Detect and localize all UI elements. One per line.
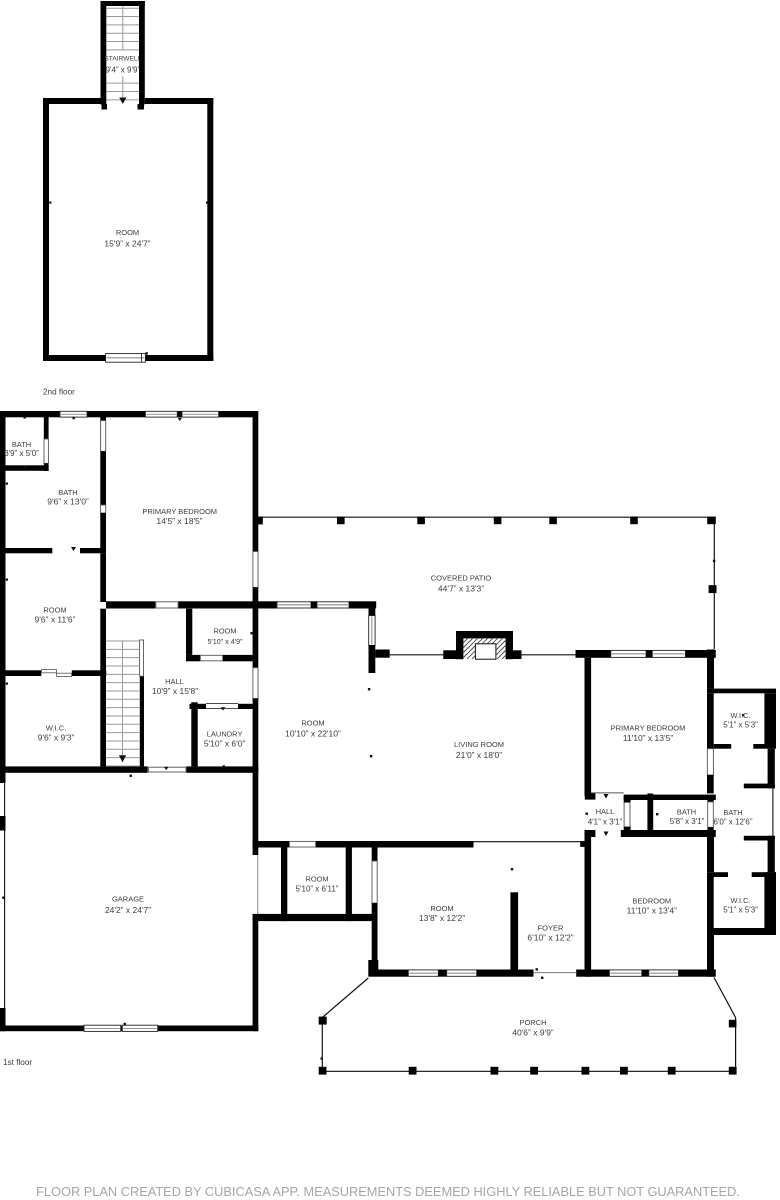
svg-text:HALL: HALL bbox=[596, 807, 615, 816]
svg-text:FOYER: FOYER bbox=[538, 924, 564, 933]
svg-text:1st floor: 1st floor bbox=[3, 1058, 32, 1067]
svg-text:PRIMARY BEDROOM: PRIMARY BEDROOM bbox=[142, 507, 217, 516]
svg-text:5'10” x 4'9”: 5'10” x 4'9” bbox=[207, 637, 243, 646]
svg-text:LAUNDRY: LAUNDRY bbox=[207, 730, 243, 739]
svg-text:9'4” x 9'9”: 9'4” x 9'9” bbox=[105, 65, 140, 74]
svg-text:ROOM: ROOM bbox=[116, 228, 139, 237]
svg-text:24'2” x 24'7”: 24'2” x 24'7” bbox=[105, 905, 151, 915]
svg-text:BEDROOM: BEDROOM bbox=[632, 896, 671, 905]
svg-text:40'6” x 9'9”: 40'6” x 9'9” bbox=[512, 1028, 554, 1038]
svg-text:ROOM: ROOM bbox=[214, 627, 237, 636]
svg-text:4'1” x 3'1”: 4'1” x 3'1” bbox=[588, 817, 623, 826]
svg-text:BATH: BATH bbox=[677, 807, 696, 816]
svg-text:5'10” x 6'11”: 5'10” x 6'11” bbox=[296, 885, 339, 894]
svg-text:ROOM: ROOM bbox=[430, 904, 453, 913]
svg-text:W.I.C.: W.I.C. bbox=[46, 723, 66, 732]
svg-text:ROOM: ROOM bbox=[306, 875, 329, 884]
svg-text:9'6” x 13'0”: 9'6” x 13'0” bbox=[47, 497, 89, 507]
svg-text:W.I.C.: W.I.C. bbox=[730, 711, 750, 720]
svg-text:FLOOR PLAN CREATED BY CUBICASA: FLOOR PLAN CREATED BY CUBICASA APP. MEAS… bbox=[36, 1184, 740, 1199]
svg-text:BATH: BATH bbox=[723, 808, 742, 817]
svg-text:PORCH: PORCH bbox=[519, 1018, 546, 1027]
svg-text:ROOM: ROOM bbox=[43, 605, 66, 614]
svg-text:GARAGE: GARAGE bbox=[112, 895, 144, 904]
svg-text:13'8” x 12'2”: 13'8” x 12'2” bbox=[419, 913, 465, 923]
svg-text:5'10” x 6'0”: 5'10” x 6'0” bbox=[204, 739, 246, 749]
svg-text:11'10” x 13'4”: 11'10” x 13'4” bbox=[627, 905, 678, 915]
svg-text:15'9” x 24'7”: 15'9” x 24'7” bbox=[104, 239, 150, 249]
svg-text:PRIMARY BEDROOM: PRIMARY BEDROOM bbox=[611, 724, 686, 733]
svg-text:2nd floor: 2nd floor bbox=[43, 388, 75, 397]
svg-text:COVERED PATIO: COVERED PATIO bbox=[431, 574, 492, 583]
svg-text:21'0” x 18'0”: 21'0” x 18'0” bbox=[456, 750, 502, 760]
svg-text:3'9” x 5'0”: 3'9” x 5'0” bbox=[4, 449, 39, 458]
svg-text:HALL: HALL bbox=[165, 677, 184, 686]
svg-text:14'5” x 18'5”: 14'5” x 18'5” bbox=[156, 516, 202, 526]
svg-text:11'10” x 13'5”: 11'10” x 13'5” bbox=[623, 733, 674, 743]
svg-text:BATH: BATH bbox=[12, 440, 31, 449]
svg-text:9'6” x 11'6”: 9'6” x 11'6” bbox=[35, 614, 76, 624]
svg-text:LIVING ROOM: LIVING ROOM bbox=[454, 740, 504, 749]
svg-text:STAIRWELL: STAIRWELL bbox=[104, 56, 141, 63]
svg-text:ROOM: ROOM bbox=[301, 719, 324, 728]
svg-text:9'6” x 9'3”: 9'6” x 9'3” bbox=[38, 732, 75, 742]
svg-text:5'1” x 5'3”: 5'1” x 5'3” bbox=[723, 906, 758, 915]
svg-text:10'9” x 15'8”: 10'9” x 15'8” bbox=[152, 686, 198, 696]
svg-text:W.I.C.: W.I.C. bbox=[730, 896, 750, 905]
svg-text:44'7” x 13'3”: 44'7” x 13'3” bbox=[438, 584, 484, 594]
svg-text:10'10” x 22'10”: 10'10” x 22'10” bbox=[285, 729, 341, 739]
svg-text:5'1” x 5'3”: 5'1” x 5'3” bbox=[723, 721, 758, 730]
svg-text:6'0” x 12'6”: 6'0” x 12'6” bbox=[713, 817, 752, 826]
svg-text:6'10” x 12'2”: 6'10” x 12'2” bbox=[527, 933, 573, 943]
svg-text:5'8” x 3'1”: 5'8” x 3'1” bbox=[670, 817, 705, 826]
